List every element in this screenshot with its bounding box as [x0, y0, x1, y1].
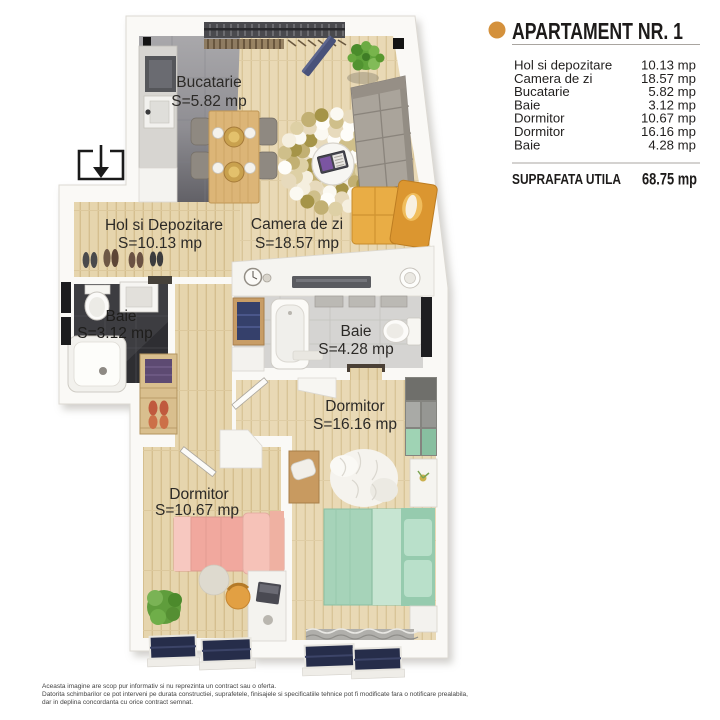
svg-text:APARTAMENT NR. 1: APARTAMENT NR. 1 — [512, 18, 683, 44]
svg-text:S=10.13 mp: S=10.13 mp — [118, 235, 202, 252]
svg-text:Aceasta imagine are scop pur i: Aceasta imagine are scop pur informativ … — [42, 683, 276, 690]
svg-text:S=4.28 mp: S=4.28 mp — [318, 341, 393, 358]
svg-text:S=10.67 mp: S=10.67 mp — [155, 502, 239, 519]
svg-text:Hol si Depozitare: Hol si Depozitare — [105, 217, 223, 234]
svg-text:SUPRAFATA UTILA: SUPRAFATA UTILA — [512, 172, 621, 188]
svg-text:68.75 mp: 68.75 mp — [642, 171, 697, 189]
svg-text:Camera de zi: Camera de zi — [251, 216, 343, 233]
svg-text:Dormitor: Dormitor — [169, 486, 228, 503]
svg-text:4.28 mp: 4.28 mp — [648, 137, 696, 152]
svg-text:Baie: Baie — [514, 137, 540, 152]
svg-text:Datorita schimbarilor ce pot i: Datorita schimbarilor ce pot interveni p… — [42, 691, 468, 698]
svg-text:Baie: Baie — [105, 308, 136, 325]
svg-text:Dormitor: Dormitor — [325, 398, 384, 415]
svg-text:Bucatarie: Bucatarie — [176, 74, 241, 91]
svg-text:S=5.82 mp: S=5.82 mp — [171, 93, 246, 110]
svg-text:Baie: Baie — [340, 323, 371, 340]
svg-text:dar in deplina concordanta cu: dar in deplina concordanta cu orice cont… — [42, 699, 193, 706]
svg-text:S=16.16 mp: S=16.16 mp — [313, 416, 397, 433]
svg-text:S=18.57 mp: S=18.57 mp — [255, 235, 339, 252]
svg-text:S=3.12 mp: S=3.12 mp — [77, 325, 152, 342]
